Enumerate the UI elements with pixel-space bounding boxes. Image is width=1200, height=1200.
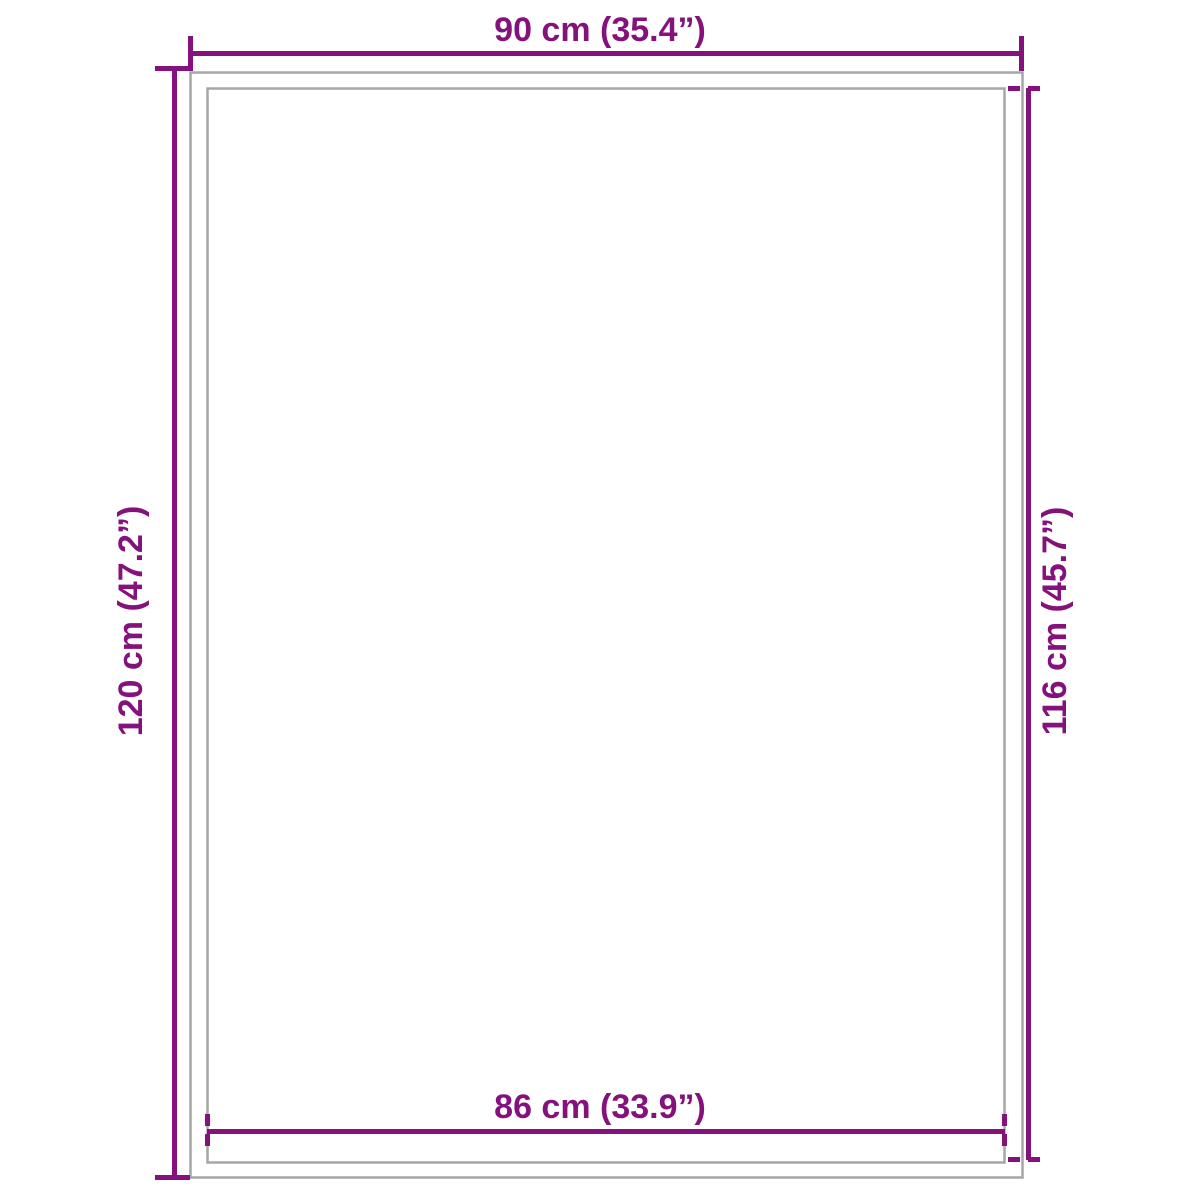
top-dimension: 90 cm (35.4”) [190, 11, 1022, 71]
left-dimension: 120 cm (47.2”) [112, 68, 190, 1178]
top-dimension-label: 90 cm (35.4”) [494, 11, 706, 49]
dimension-diagram: 90 cm (35.4”) 120 cm (47.2”) 116 cm (45.… [0, 0, 1200, 1200]
mat-outer-outline [191, 73, 1023, 1178]
dimension-diagram-svg: 90 cm (35.4”) 120 cm (47.2”) 116 cm (45.… [0, 0, 1200, 1200]
right-dimension-label: 116 cm (45.7”) [1036, 507, 1074, 736]
left-dimension-label: 120 cm (47.2”) [112, 506, 150, 737]
bottom-dimension: 86 cm (33.9”) [207, 1088, 1005, 1150]
mat-inner-outline [208, 89, 1005, 1163]
right-dimension: 116 cm (45.7”) [1008, 88, 1074, 1160]
bottom-dimension-label: 86 cm (33.9”) [494, 1088, 706, 1126]
